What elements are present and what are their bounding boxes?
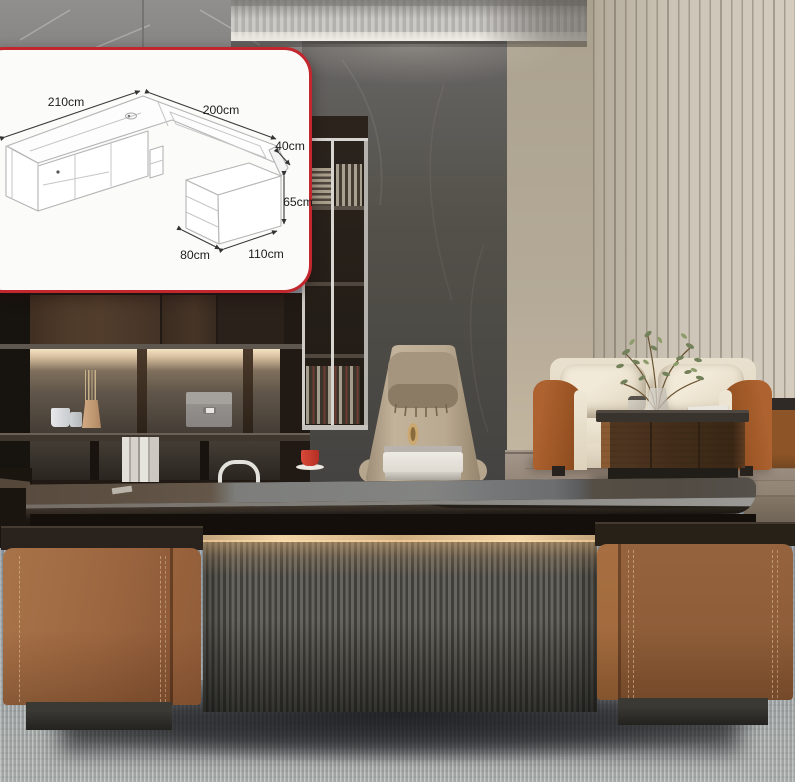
svg-text:110cm: 110cm: [248, 247, 284, 261]
svg-text:65cm: 65cm: [283, 195, 312, 209]
svg-text:80cm: 80cm: [180, 248, 210, 262]
svg-text:210cm: 210cm: [48, 95, 85, 109]
svg-text:40cm: 40cm: [275, 139, 305, 153]
svg-text:200cm: 200cm: [203, 103, 240, 117]
